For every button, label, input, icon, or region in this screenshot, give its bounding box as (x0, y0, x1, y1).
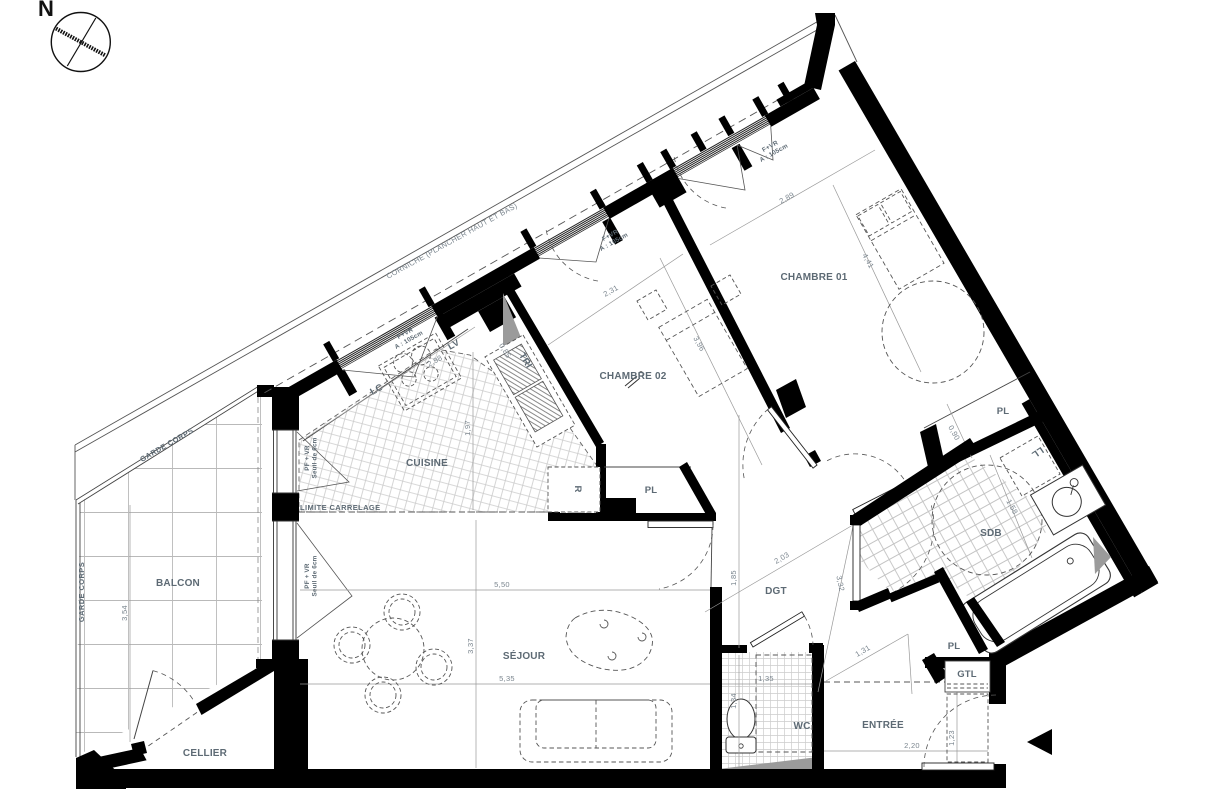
svg-text:GTL: GTL (957, 669, 977, 680)
svg-text:SDB: SDB (980, 528, 1002, 539)
svg-text:LIMITE CARRELAGE: LIMITE CARRELAGE (300, 503, 381, 512)
svg-text:PL: PL (997, 406, 1010, 417)
svg-text:DGT: DGT (765, 586, 787, 597)
svg-text:1,34: 1,34 (729, 693, 738, 709)
svg-text:5,50: 5,50 (494, 580, 510, 589)
svg-text:3,54: 3,54 (120, 605, 129, 621)
svg-text:WC: WC (793, 721, 810, 732)
svg-text:ENTRÉE: ENTRÉE (862, 718, 904, 731)
svg-text:2,20: 2,20 (904, 741, 920, 750)
svg-text:PL: PL (645, 485, 658, 496)
svg-text:1,35: 1,35 (758, 674, 774, 683)
svg-text:PL: PL (948, 641, 961, 652)
svg-text:PF + VR: PF + VR (304, 445, 311, 471)
svg-text:5,35: 5,35 (499, 674, 515, 683)
svg-text:PF + VR: PF + VR (304, 563, 311, 589)
svg-text:Seuil de 6cm: Seuil de 6cm (312, 437, 319, 478)
svg-text:CELLIER: CELLIER (183, 748, 228, 759)
svg-text:GARDE CORPS: GARDE CORPS (77, 562, 86, 622)
svg-text:N: N (38, 0, 54, 21)
svg-text:CHAMBRE 02: CHAMBRE 02 (599, 371, 666, 382)
svg-text:1,85: 1,85 (729, 570, 738, 586)
svg-text:CUISINE: CUISINE (406, 458, 448, 469)
svg-text:3,37: 3,37 (466, 638, 475, 654)
svg-text:CHAMBRE 01: CHAMBRE 01 (780, 272, 847, 283)
svg-text:SÉJOUR: SÉJOUR (503, 649, 546, 662)
svg-text:1,23: 1,23 (947, 730, 956, 746)
svg-text:BALCON: BALCON (156, 578, 200, 589)
svg-text:1,97: 1,97 (463, 420, 472, 436)
svg-text:R: R (572, 485, 583, 492)
